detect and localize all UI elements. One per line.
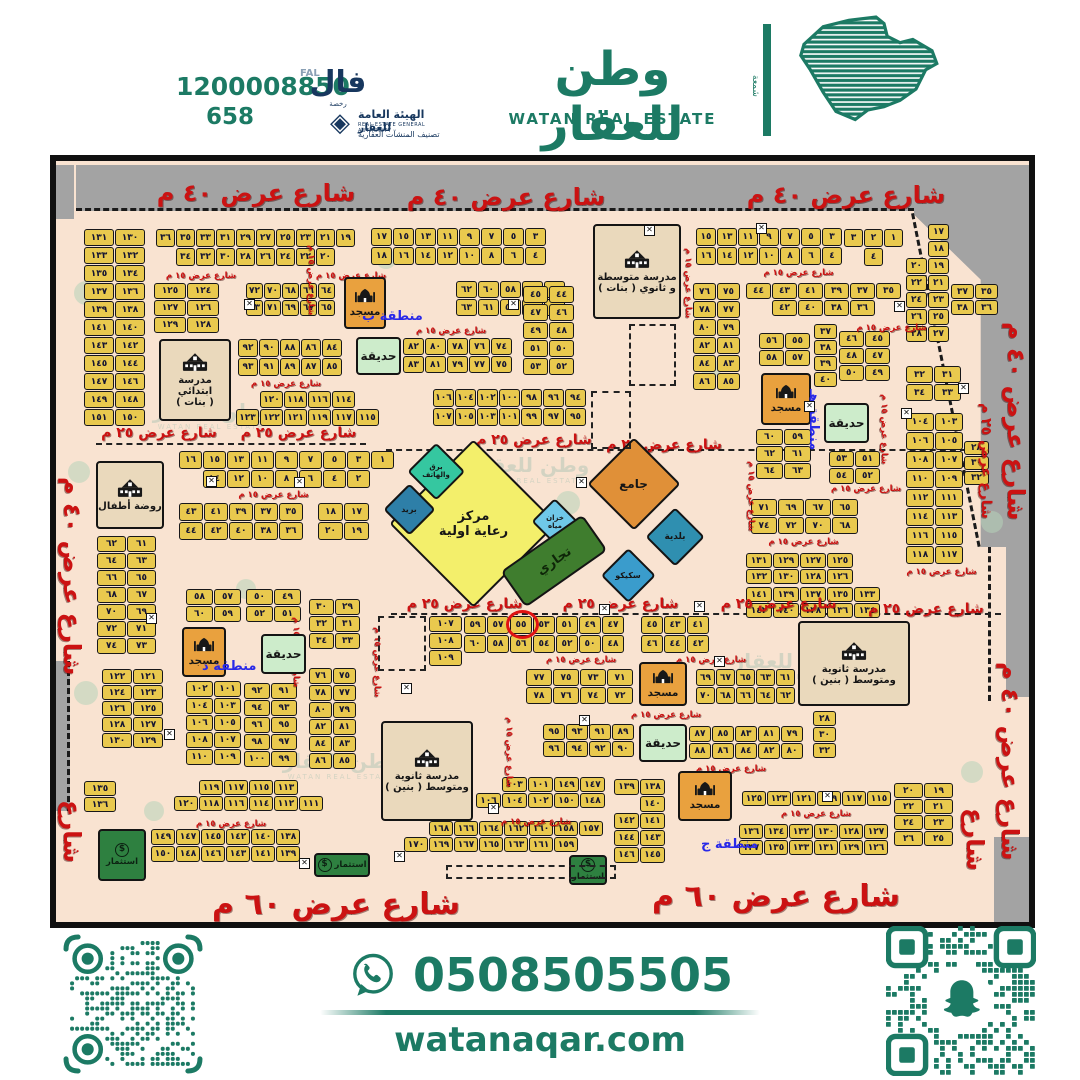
plot-cell: ١٢١ [792, 791, 816, 806]
plot-cell: ٧٨ [309, 685, 332, 701]
plot-cell: ١٤٦ [201, 846, 225, 862]
plot-cell: ٧١ [264, 300, 281, 316]
street-label-40m: شارع عرض ٤٠ م [711, 181, 981, 209]
plot-cell: ٧٠ [264, 283, 281, 299]
plot-cell: ١٦ [393, 247, 414, 265]
plot-cell: ٩٦ [543, 741, 565, 757]
plot-cell: ١٠١ [528, 777, 553, 792]
junction-marker: ✕ [579, 715, 590, 726]
street-label-15m: شارع عرض ١٥ م [751, 809, 881, 819]
plot-cell: ٧٢ [607, 687, 633, 704]
plot-cell: ١٧ [371, 228, 392, 246]
plot-cell: ٢٤ [906, 292, 927, 308]
plot-cell: ٣٥ [176, 229, 195, 247]
plot-cell: ٧٧ [526, 669, 552, 686]
plot-cell: ٤٥ [641, 616, 663, 634]
plot-cell: ١٣٢ [746, 569, 772, 584]
whatsapp-number: 0508505505 [413, 948, 733, 1002]
plot-cell: ٧٢ [97, 621, 126, 637]
plot-cell: ٢٩ [335, 599, 360, 615]
plot-cell: ٥٩ [464, 616, 486, 634]
plot-cell: ١١٥ [356, 409, 379, 426]
plot-cell: ١٠٦ [433, 389, 454, 407]
plot-cell: ١٤٧ [84, 373, 114, 390]
plot-cell: ٢١ [316, 229, 335, 247]
plot-cell: ٢٩ [236, 229, 255, 247]
plot-cell: ٩٤ [566, 741, 588, 757]
plot-cell: ١٤٨ [115, 391, 145, 408]
plot-cell: ٩٨ [521, 389, 542, 407]
plot-cell: ٥٠ [579, 635, 601, 653]
qr-code-left [62, 933, 204, 1075]
plot-cell: ٨٢ [693, 337, 716, 354]
vacant-parcel [591, 391, 631, 449]
plot-cell: ٤١ [204, 503, 228, 521]
plot-cell: ١٥٠ [115, 409, 145, 426]
street-label-15m: شارع عرض ١٥ م [526, 655, 636, 665]
street-label-40m: شارع عرض ٤٠ م [371, 183, 641, 211]
plot-cell: ١٦٥ [479, 837, 503, 852]
tree-icon [961, 761, 983, 783]
plot-cell: ١٣ [415, 228, 436, 246]
school-label: مدرسة ثانوية ومتوسط ( بنين ) [812, 664, 896, 686]
school-label: مدرسة ثانوية ومتوسط ( بنين ) [385, 771, 469, 793]
vacant-parcel [378, 616, 426, 671]
plot-cell: ١٣٧ [84, 283, 114, 300]
authority-phone: 1200008850 [176, 72, 306, 101]
plot-cell: ١٤٠ [251, 829, 275, 845]
street-label-25m: شارع عرض ٢٥ م [476, 432, 591, 448]
plot-cell: ١٢٥ [154, 283, 186, 299]
plot-cell: ١٥٩ [554, 837, 578, 852]
street-label-60m: شارع عرض ٦٠ م [191, 887, 481, 922]
plot-cell: ٣٢ [309, 616, 334, 632]
street-label-15m: شارع عرض ١٥ م [236, 379, 336, 389]
plot-cell: ٤٤ [746, 283, 771, 299]
plot-cell: ١١٦ [906, 527, 934, 545]
plot-cell: ١١ [738, 228, 758, 246]
plot-cell: ١٠٤ [186, 698, 213, 714]
plot-cell: ٩٦ [244, 717, 270, 733]
plot-cell: ١٤٤ [614, 830, 639, 846]
plot-cell: ١٣١ [746, 553, 772, 568]
school-icon [117, 479, 143, 501]
zone-label: منطقة ج [701, 837, 758, 852]
plot-cell: ٥٩ [214, 606, 241, 622]
plot-cell: ١٢٨ [187, 317, 219, 333]
plot-cell: ٩٦ [543, 389, 564, 407]
street-label-15m: شارع عرض ١٥ م [471, 817, 601, 827]
school-block: روضة أطفال [96, 461, 164, 529]
plot-cell: ١٥ [696, 228, 716, 246]
plot-cell: ٧ [780, 228, 800, 246]
plot-cell: ٦٣ [784, 463, 811, 479]
plot-cell: ٦٨ [716, 687, 735, 704]
plot-cell: ٢ [864, 229, 883, 247]
footer-divider [320, 1010, 760, 1015]
junction-marker: ✕ [644, 225, 655, 236]
plot-cell: ١٣٠ [102, 733, 132, 748]
plot-cell: ١١٤ [249, 796, 273, 811]
plot-cell: ٧٢ [778, 517, 804, 534]
plot-cell: ١٢ [227, 470, 250, 488]
plot-cell: ١٢٨ [800, 569, 826, 584]
mosque-block: مسجد [639, 662, 687, 706]
plot-cell: ٣٠ [813, 727, 836, 742]
street-label-25m: شارع عرض ٢٥ م [868, 601, 978, 617]
plot-cell: ١٣ [227, 451, 250, 469]
plot-cell: ٤٧ [865, 348, 890, 364]
plot-cell: ٦١ [478, 299, 499, 316]
plot-cell: ٩٢ [244, 683, 270, 699]
plot-cell: ٥١ [855, 451, 880, 467]
plot-cell: ١٢٧ [800, 553, 826, 568]
zone-label: منطقة د [202, 659, 256, 674]
plot-cell: ٩٣ [566, 724, 588, 740]
plot-cell: ١٦١ [529, 837, 553, 852]
plot-cell: ٧٨ [693, 301, 716, 318]
plot-cell: ١٢٥ [742, 791, 766, 806]
garden-label: حديقة [266, 647, 302, 661]
junction-marker: ✕ [206, 476, 217, 487]
plot-cell: ١٤٠ [640, 796, 665, 812]
plot-cell: ١٠٣ [477, 408, 498, 426]
plot-cell: ٣٥ [279, 503, 303, 521]
school-block: مدرسة ثانوية ومتوسط ( بنين ) [381, 721, 473, 821]
plot-cell: ٣٤ [906, 384, 933, 401]
plot-cell: ١٤٧ [580, 777, 605, 792]
plot-cell: ٨٣ [735, 726, 757, 742]
plot-cell: ١٢٢ [102, 669, 132, 684]
plot-cell: ١٠٨ [186, 732, 213, 748]
plot-cell: ٢٨ [236, 248, 255, 266]
brand-divider-bar [763, 24, 771, 136]
plot-cell: ٩٥ [565, 408, 586, 426]
plot-cell: ٣٥ [975, 284, 998, 299]
plot-cell: ٢٧ [256, 229, 275, 247]
whatsapp-icon [347, 949, 399, 1001]
plot-cell: ٤٦ [549, 304, 574, 321]
map-canvas: وطن للعقارWATAN REAL ESTATEوطن للعقارWAT… [50, 155, 1035, 928]
plot-cell: ١٠١ [214, 681, 241, 697]
plot-cell: ٣٦ [156, 229, 175, 247]
street-label-40m: شارع عرض ٤٠ م [116, 179, 396, 207]
plot-cell: ١١٠ [186, 749, 213, 765]
plot-cell: ٤٠ [229, 522, 253, 540]
plot-cell: ١١٩ [308, 409, 331, 426]
plot-cell: ١٠٧ [935, 451, 963, 469]
plot-cell: ٤٦ [839, 331, 864, 347]
plot-cell: ١٢٢ [260, 409, 283, 426]
junction-marker: ✕ [576, 477, 587, 488]
school-icon [182, 353, 208, 375]
plot-cell: ١٤ [415, 247, 436, 265]
plot-cell: ٤٩ [579, 616, 601, 634]
plot-cell: ٤ [525, 247, 546, 265]
plot-cell: ١٦٩ [429, 837, 453, 852]
plot-cell: ١٤٦ [614, 847, 639, 863]
baladia-label: بلدية [651, 513, 699, 561]
plot-cell: ٤٣ [664, 616, 686, 634]
plot-cell: ١٢١ [284, 409, 307, 426]
mosque-icon [194, 637, 214, 655]
plot-cell: ١٤٥ [84, 355, 114, 372]
plot-cell: ٩٢ [589, 741, 611, 757]
school-block: مدرسة ثانوية ومتوسط ( بنين ) [798, 621, 910, 706]
brand-name-english: WATAN REAL ESTATE [480, 110, 745, 128]
plot-cell: ١١٤ [332, 391, 355, 408]
mosque-icon [776, 384, 796, 402]
plot-cell: ٨١ [333, 719, 356, 735]
plot-cell: ٨٠ [781, 743, 803, 759]
plot-cell: ٦٣ [756, 669, 775, 686]
plot-cell: ٦١ [776, 669, 795, 686]
school-icon [841, 642, 867, 664]
plot-cell: ١٢٨ [102, 717, 132, 732]
plot-cell: ٦٨ [832, 517, 858, 534]
garden-label: حديقة [645, 736, 681, 750]
plot-cell: ١٢٣ [133, 685, 163, 700]
plot-cell: ١٠٦ [906, 432, 934, 450]
plot-cell: ٤٠ [814, 372, 837, 387]
plot-cell: ٧٨ [526, 687, 552, 704]
plot-cell: ٣٨ [814, 340, 837, 355]
plot-cell: ٧٧ [469, 356, 490, 373]
plot-cell: ١٩ [336, 229, 355, 247]
plot-cell: ١٤٢ [226, 829, 250, 845]
plot-cell: ٤٢ [204, 522, 228, 540]
plot-cell: ١٣٨ [115, 301, 145, 318]
plot-cell: ١٩ [928, 258, 949, 274]
plot-cell: ٦١ [127, 536, 156, 552]
plot-cell: ١٦٣ [504, 837, 528, 852]
plot-cell: ٧٣ [580, 669, 606, 686]
plot-cell: ١٠٦ [186, 715, 213, 731]
plot-cell: ٩٤ [565, 389, 586, 407]
plot-cell: ٥٤ [533, 635, 555, 653]
plot-cell: ٣ [525, 228, 546, 246]
plot-cell: ٦٠ [478, 281, 499, 298]
plot-cell: ١٠٣ [214, 698, 241, 714]
plot-cell: ١٠٠ [499, 389, 520, 407]
plot-cell: ٣٩ [814, 356, 837, 371]
plot-cell: ٣٧ [814, 324, 837, 339]
mosque-block: مسجد [761, 373, 811, 425]
plot-cell: ١٢٣ [236, 409, 259, 426]
plot-cell: ٨٥ [333, 753, 356, 769]
plot-cell: ١٢١ [133, 669, 163, 684]
plot-cell: ١٩ [344, 522, 369, 540]
plot-cell: ٣٢ [906, 366, 933, 383]
authority-diamond-icon: ◈ [330, 108, 350, 138]
garden-block: حديقة [824, 403, 869, 443]
brand-name-arabic: وطن للعقار [480, 42, 745, 152]
plot-cell: ٨١ [717, 337, 740, 354]
plot-cell: ١١٨ [284, 391, 307, 408]
plot-cell: ٤٢ [772, 300, 797, 316]
plot-cell: ١٣٦ [84, 797, 116, 812]
plot-cell: ٢١ [924, 799, 953, 814]
plot-cell: ١١٥ [867, 791, 891, 806]
plot-cell: ٢٥ [924, 831, 953, 846]
plot-cell: ١٠٩ [429, 650, 462, 666]
plot-cell: ١٥ [393, 228, 414, 246]
plot-cell: ٤٣ [772, 283, 797, 299]
plot-cell: ١٤٢ [115, 337, 145, 354]
plot-cell: ٩٠ [259, 339, 279, 357]
plot-cell: ١٤ [717, 247, 737, 265]
plot-cell: ٨٧ [301, 358, 321, 376]
plot-cell: ١٢٥ [133, 701, 163, 716]
plot-cell: ١٦٧ [454, 837, 478, 852]
plot-cell: ٨٦ [301, 339, 321, 357]
plot-cell: ٢ [347, 470, 370, 488]
plot-cell: ٣١ [335, 616, 360, 632]
plot-cell: ١٢٩ [839, 840, 863, 855]
plot-cell: ٦٦ [736, 687, 755, 704]
plot-cell: ٨٦ [309, 753, 332, 769]
street-label-40m: شارع عرض ٤٠ م [996, 631, 1024, 891]
plot-cell: ٨٣ [333, 736, 356, 752]
plot-cell: ٩٥ [543, 724, 565, 740]
mosque-icon [653, 669, 673, 687]
plot-cell: ١٢٧ [864, 824, 888, 839]
plot-cell: ٨٤ [693, 355, 716, 372]
plot-cell: ٦٤ [318, 283, 335, 299]
plot-cell: ١٦ [179, 451, 202, 469]
plot-cell: ١٥١ [84, 409, 114, 426]
plot-cell: ٦٤ [756, 687, 775, 704]
plot-cell: ١٤١ [640, 813, 665, 829]
plot-cell: ١٢٤ [102, 685, 132, 700]
plot-cell: ٤٨ [549, 322, 574, 339]
plot-cell: ٢٦ [256, 248, 275, 266]
street-label-40m: شارع عرض ٤٠ م [58, 411, 86, 741]
plot-cell: ٧٥ [491, 356, 512, 373]
plot-cell: ١٦ [696, 247, 716, 265]
street-label-15m: شارع عرض ١٥ م [894, 567, 989, 577]
plot-cell: ١٣٤ [115, 265, 145, 282]
plot-cell: ٥٠ [549, 340, 574, 357]
plot-cell: ٥٨ [759, 350, 784, 366]
plot-cell: ١٨ [318, 503, 343, 521]
junction-marker: ✕ [901, 408, 912, 419]
plot-cell: ٣٢ [196, 248, 215, 266]
plot-cell: ٧٩ [333, 702, 356, 718]
plot-cell: ١٥٠ [554, 793, 579, 808]
highlighted-plot-circle [506, 610, 539, 639]
plot-cell: ١٣٥ [84, 781, 116, 796]
plot-cell: ٧٤ [580, 687, 606, 704]
plot-cell: ٤٤ [549, 286, 574, 303]
plot-cell: ٧٧ [333, 685, 356, 701]
plot-cell: ٦٤ [756, 463, 783, 479]
plot-cell: ٢٠ [894, 783, 923, 798]
plot-cell: ٣٤ [309, 633, 334, 649]
tree-icon [144, 801, 164, 821]
plot-cell: ٥٠ [839, 365, 864, 381]
plot-cell: ٤٩ [523, 322, 548, 339]
plot-cell: ١٤٩ [554, 777, 579, 792]
plot-cell: ٧٤ [97, 638, 126, 654]
plot-cell: ١٣٥ [764, 840, 788, 855]
plot-cell: ٣٨ [951, 300, 974, 315]
plot-cell: ٥ [503, 228, 524, 246]
plot-cell: ١٤١ [84, 319, 114, 336]
dollar-icon: $ [115, 843, 129, 857]
zone-label: منطقة ب [362, 309, 423, 324]
plot-cell: ١٩ [924, 783, 953, 798]
plot-cell: ١٠٠ [244, 751, 270, 767]
plot-cell: ١٣٤ [764, 824, 788, 839]
plot-cell: ٧٩ [447, 356, 468, 373]
plot-cell: ٢٢ [894, 799, 923, 814]
street-label-25m: شارع عرض ٢٥ م [94, 425, 224, 441]
plot-cell: ٩٧ [271, 734, 297, 750]
plot-cell: ٦٠ [464, 635, 486, 653]
plot-cell: ١٤٨ [580, 793, 605, 808]
plot-cell: ٦٢ [456, 281, 477, 298]
plot-cell: ٦٣ [127, 553, 156, 569]
plot-cell: ١٠٢ [528, 793, 553, 808]
plot-cell: ١٣٩ [84, 301, 114, 318]
plot-cell: ١٥٠ [151, 846, 175, 862]
plot-cell: ٤٣ [179, 503, 203, 521]
plot-cell: ٨٥ [712, 726, 734, 742]
street-label-15m: شارع عرض ١٥ م [683, 233, 693, 333]
plot-cell: ١٣٢ [789, 824, 813, 839]
existing-development-area [56, 165, 74, 219]
plot-cell: ١٣٣ [84, 247, 114, 264]
plot-cell: ٨٣ [403, 356, 424, 373]
plot-cell: ٥٣ [523, 358, 548, 375]
plot-cell: ٥٧ [785, 350, 810, 366]
junction-marker: ✕ [401, 683, 412, 694]
plot-cell: ٦٠ [186, 606, 213, 622]
plot-cell: ١٢٠ [260, 391, 283, 408]
garden-block: حديقة [356, 337, 401, 375]
plot-cell: ١٢٧ [133, 717, 163, 732]
plot-cell: ١٠٧ [429, 616, 462, 632]
flyer-page: 1200008850 658 FAL فال رخصة ◈ الهيئة الع… [0, 0, 1080, 1080]
plot-cell: ٣٨ [254, 522, 278, 540]
plot-cell: ٦٧ [805, 499, 831, 516]
plot-cell: ١٣٨ [276, 829, 300, 845]
plot-cell: ٦ [503, 247, 524, 265]
plot-cell: ٣٠ [309, 599, 334, 615]
plot-cell: ١٢٣ [767, 791, 791, 806]
plot-cell: ١١٦ [308, 391, 331, 408]
plot-cell: ١٨ [928, 241, 949, 257]
plot-cell: ٦٢ [776, 687, 795, 704]
plot-cell: ٤٤ [179, 522, 203, 540]
plot-cell: ١٧٠ [404, 837, 428, 852]
plot-cell: ٤٥ [523, 286, 548, 303]
plot-cell: ١٠٢ [477, 389, 498, 407]
plot-cell: ٢٤ [276, 248, 295, 266]
plot-cell: ٨ [481, 247, 502, 265]
mosque-label: مسجد [690, 799, 721, 811]
plot-cell: ٥٢ [549, 358, 574, 375]
plot-cell: ١٤٩ [84, 391, 114, 408]
plot-cell: ١٢ [738, 247, 758, 265]
junction-marker: ✕ [894, 301, 905, 312]
plot-cell: ١١ [437, 228, 458, 246]
dollar-icon: $ [318, 858, 332, 872]
plot-cell: ٣٩ [824, 283, 849, 299]
plot-cell: ٨٨ [280, 339, 300, 357]
plot-cell: ٨٧ [689, 726, 711, 742]
